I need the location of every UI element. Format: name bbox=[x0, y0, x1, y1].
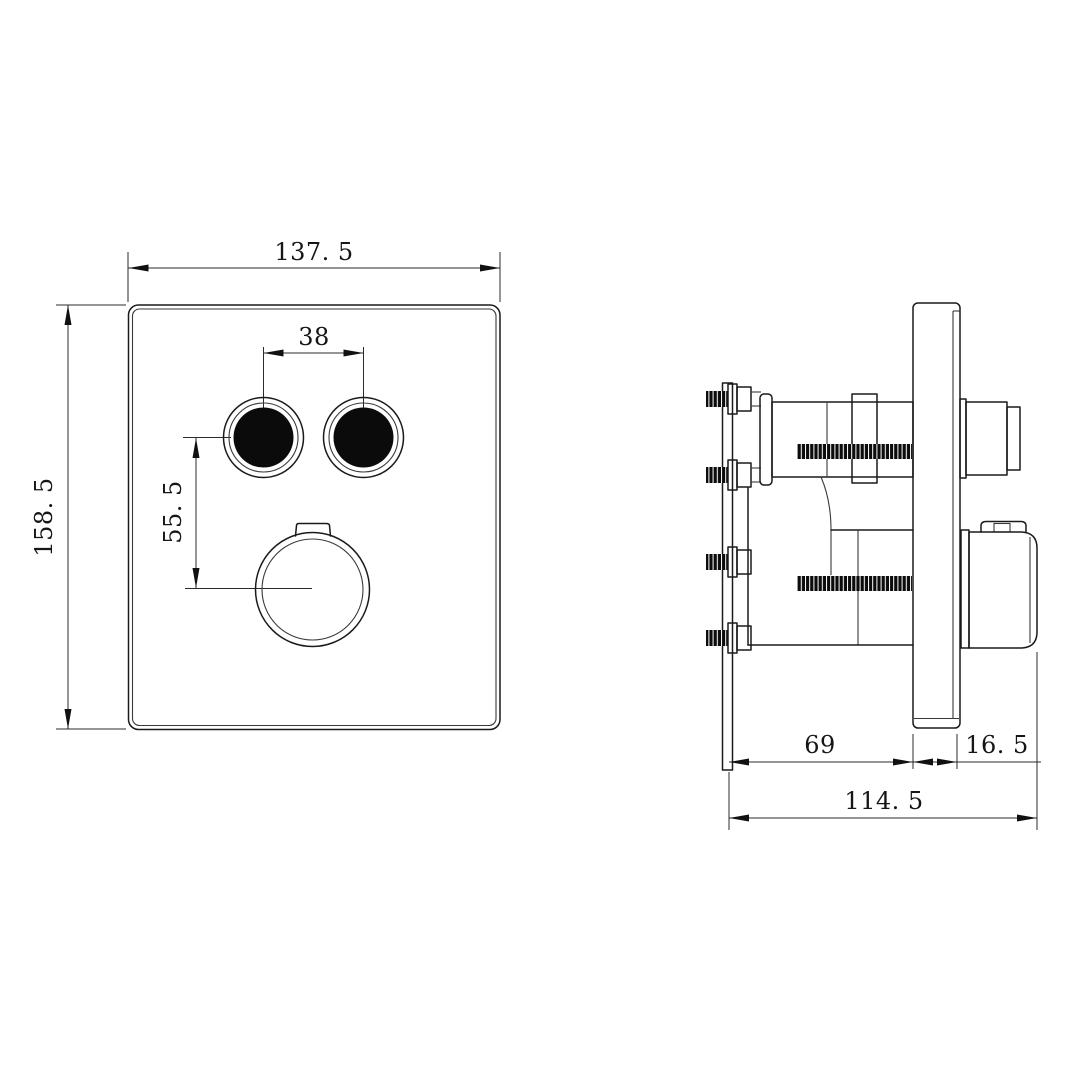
dimension-plate-knob-depth: 16. 5 bbox=[913, 731, 1041, 769]
side-view: 69 16. 5 114. 5 bbox=[706, 303, 1041, 830]
knob-body-side bbox=[969, 532, 1037, 648]
threaded-rod-upper bbox=[797, 444, 912, 459]
retaining-collar bbox=[852, 394, 877, 483]
dim-text-button-to-knob: 55. 5 bbox=[159, 480, 187, 544]
arrow-up-icon bbox=[193, 438, 200, 458]
arrow-up-icon bbox=[65, 305, 72, 325]
lug-block-1 bbox=[737, 387, 751, 411]
arrow-left-icon bbox=[129, 265, 149, 272]
faceplate-inner-edge bbox=[133, 309, 497, 726]
lug-block-4 bbox=[737, 626, 751, 650]
arrow-right-icon bbox=[893, 759, 913, 766]
dim-text-overall-depth: 114. 5 bbox=[844, 787, 923, 815]
threaded-rod-lower bbox=[797, 576, 912, 591]
dimension-plate-width: 137. 5 bbox=[128, 238, 500, 302]
dim-text-plate-height: 158. 5 bbox=[30, 477, 58, 556]
dim-text-button-spacing: 38 bbox=[298, 323, 330, 351]
knurled-knob-cap bbox=[1007, 407, 1020, 470]
valve-body-upper bbox=[760, 394, 913, 485]
arrow-left-icon bbox=[913, 759, 933, 766]
upper-cylinder bbox=[772, 402, 913, 477]
drawing-svg: 137. 5 158. 5 38 55. 5 bbox=[0, 0, 1080, 1080]
dim-text-plate-width: 137. 5 bbox=[274, 238, 353, 266]
knurled-knob-base bbox=[960, 399, 966, 478]
screw-lug-1 bbox=[706, 384, 761, 414]
knurled-knob-body bbox=[966, 402, 1007, 475]
technical-drawing: 137. 5 158. 5 38 55. 5 bbox=[0, 0, 1080, 1080]
arrow-left-icon bbox=[264, 350, 284, 357]
volume-knob-side bbox=[961, 522, 1037, 649]
arrow-down-icon bbox=[193, 568, 200, 588]
lug-block-3 bbox=[737, 550, 751, 574]
screw-lug-3 bbox=[706, 547, 751, 577]
upper-flange bbox=[760, 394, 772, 485]
arrow-right-icon bbox=[1017, 815, 1037, 822]
arrow-right-icon bbox=[344, 350, 364, 357]
knob-tab-notch bbox=[994, 524, 1010, 533]
valve-body-lower bbox=[748, 477, 913, 645]
mounting-screw-4 bbox=[706, 630, 728, 646]
trim-plate-side bbox=[913, 303, 960, 728]
screw-lug-4 bbox=[706, 623, 751, 653]
arrow-right-icon bbox=[480, 265, 500, 272]
button-right bbox=[324, 398, 404, 478]
button-left bbox=[224, 398, 304, 478]
button-right-cap bbox=[334, 408, 394, 468]
knob-inner-rim bbox=[262, 539, 363, 640]
arrow-down-icon bbox=[65, 709, 72, 729]
front-view: 137. 5 158. 5 38 55. 5 bbox=[30, 238, 500, 730]
mounting-screw-1 bbox=[706, 391, 728, 407]
body-transition-curve bbox=[821, 477, 831, 575]
button-left-cap bbox=[234, 408, 294, 468]
dim-text-plate-knob-depth: 16. 5 bbox=[965, 731, 1029, 759]
dimension-plate-height: 158. 5 bbox=[30, 305, 126, 729]
dim-text-mounting-depth: 69 bbox=[804, 731, 836, 759]
arrow-right-icon bbox=[937, 759, 957, 766]
mounting-screw-2 bbox=[706, 467, 728, 483]
temperature-knob bbox=[256, 524, 370, 647]
knob-outer-rim bbox=[256, 533, 370, 647]
dimension-mounting-depth: 69 bbox=[729, 731, 913, 830]
lug-block-2 bbox=[737, 463, 751, 487]
knurled-knob bbox=[960, 399, 1020, 478]
knob-base-flange bbox=[961, 530, 969, 648]
mounting-screw-3 bbox=[706, 554, 728, 570]
arrow-left-icon bbox=[729, 815, 749, 822]
screw-lug-2 bbox=[706, 460, 761, 490]
